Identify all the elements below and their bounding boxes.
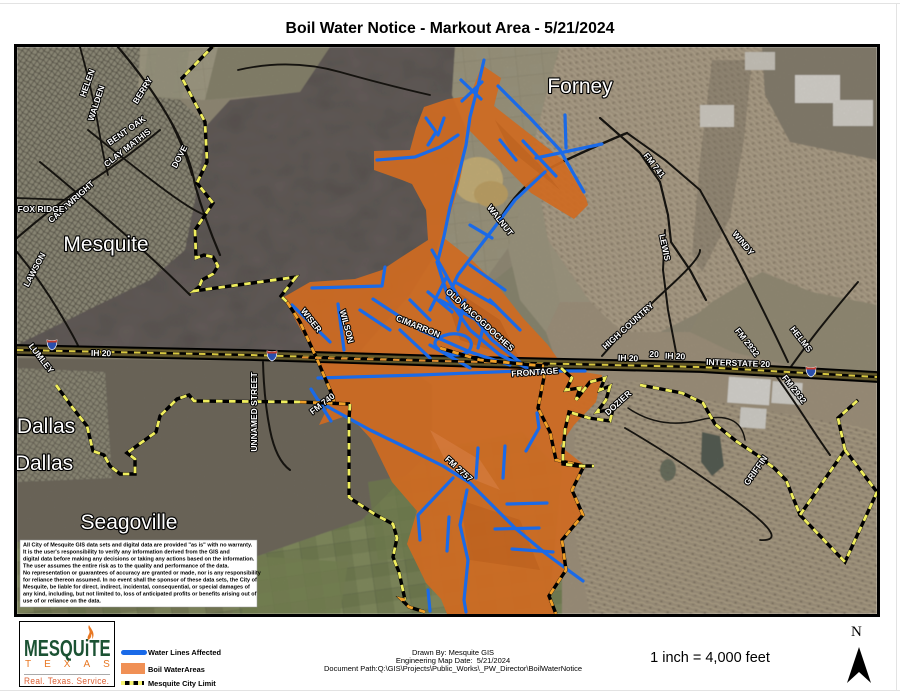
svg-text:20: 20 — [649, 349, 659, 359]
svg-text:Forney: Forney — [547, 75, 613, 98]
svg-text:IH 20: IH 20 — [618, 353, 639, 364]
svg-text:UNNAMED STREET: UNNAMED STREET — [249, 372, 259, 452]
svg-text:digital data before making any: digital data before making any decisions… — [23, 557, 255, 563]
svg-text:The user assumes the entire ri: The user assumes the entire risk as to t… — [23, 564, 229, 570]
svg-text:Mesquite: Mesquite — [63, 233, 148, 256]
svg-text:No representation or guarantee: No representation or guarantees of accur… — [23, 571, 262, 577]
svg-text:Seagoville: Seagoville — [81, 511, 178, 534]
svg-text:IH 20: IH 20 — [91, 348, 112, 358]
svg-text:Dallas: Dallas — [17, 452, 73, 475]
svg-text:for reliance thereon assumed.: for reliance thereon assumed. In no even… — [23, 578, 257, 584]
svg-text:use of or reliance on the data: use of or reliance on the data. — [23, 599, 101, 605]
svg-text:IH 20: IH 20 — [665, 351, 686, 362]
svg-text:Mesquite, be liable for direct: Mesquite, be liable for direct, indirect… — [23, 585, 250, 591]
svg-text:It is the user's responsibilit: It is the user's responsibility to verif… — [23, 550, 230, 556]
svg-text:FOX RIDGE: FOX RIDGE — [18, 204, 65, 214]
svg-text:Dallas: Dallas — [17, 415, 75, 438]
svg-text:All City of Mesquite GIS data: All City of Mesquite GIS data sets and d… — [23, 543, 253, 549]
svg-text:any kind, including, but not l: any kind, including, but not limited to,… — [23, 592, 257, 598]
